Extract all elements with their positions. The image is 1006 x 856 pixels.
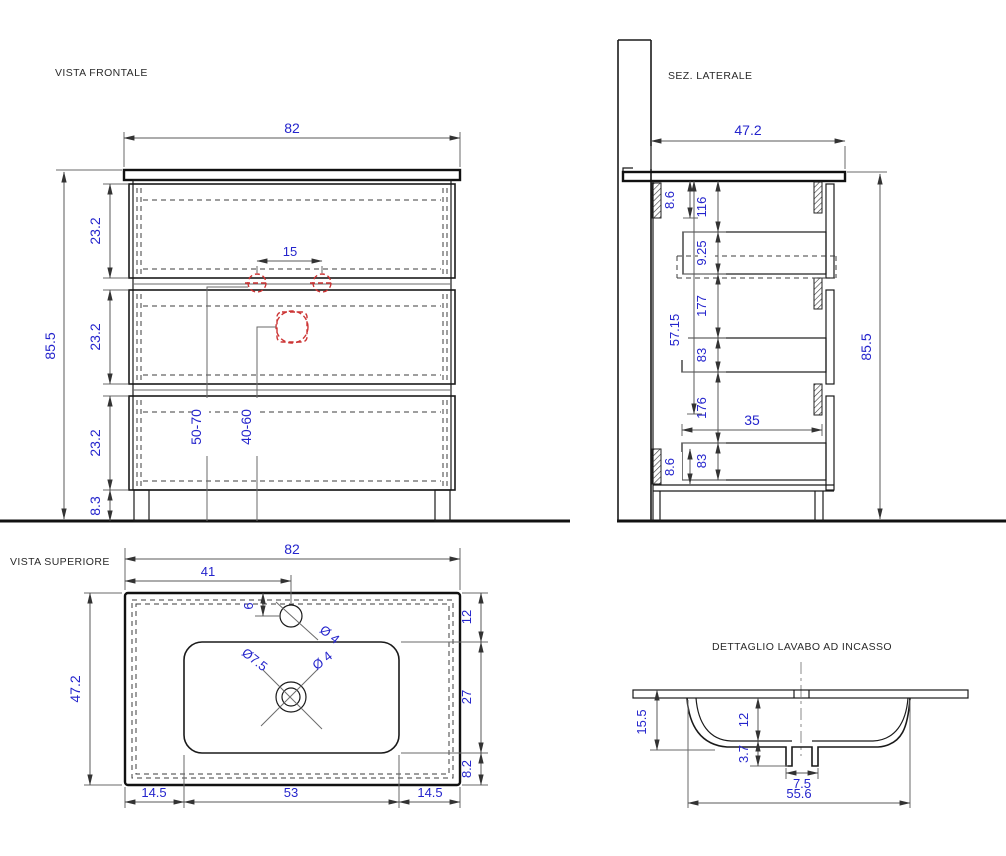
side-margin-left-label: 14.5 <box>141 785 166 800</box>
plinth-height-label: 8.3 <box>87 496 103 516</box>
basin-width-label: 53 <box>284 785 298 800</box>
tap-offset-y-label: 6 <box>241 602 256 609</box>
technical-drawing-canvas: VISTA FRONTALE <box>0 0 1006 856</box>
side-top-clearance-label: 116 <box>694 197 709 218</box>
detail-drain-drop-label: 3.7 <box>736 745 751 763</box>
top-depth-label: 47.2 <box>67 675 83 702</box>
front-total-height-label: 85.5 <box>42 332 58 359</box>
detail-total-depth-label: 15.5 <box>634 709 649 734</box>
tap-spacing-label: 15 <box>283 244 297 259</box>
side-drawer-depth-label: 35 <box>744 412 760 428</box>
side-top-gap-label: 8.6 <box>662 191 677 209</box>
side-total-height-label: 85.5 <box>858 333 874 360</box>
supply-height-range-label: 50-70 <box>188 409 204 445</box>
side-spacing2-label: 176 <box>694 397 709 419</box>
side-inner-height-label: 57.15 <box>667 314 682 347</box>
front-view-title: VISTA FRONTALE <box>55 67 148 79</box>
side-view-title: SEZ. LATERALE <box>668 70 752 82</box>
detail-bowl-width-label: 55.6 <box>786 786 811 801</box>
side-box1-label: 9.25 <box>694 240 709 265</box>
side-spacing1-label: 177 <box>694 295 709 317</box>
side-depth-label: 47.2 <box>734 122 761 138</box>
side-bottom-gap-label: 8.6 <box>662 458 677 476</box>
drawer3-height-label: 23.2 <box>87 429 103 456</box>
basin-depth-label: 27 <box>459 690 474 704</box>
back-margin-label: 12 <box>459 610 474 624</box>
detail-bowl-depth-label: 12 <box>736 713 751 727</box>
top-width-label: 82 <box>284 541 300 557</box>
side-box2-label: 83 <box>694 348 709 362</box>
top-view-title: VISTA SUPERIORE <box>10 556 110 568</box>
front-margin-label: 8.2 <box>459 760 474 778</box>
side-box3-label: 83 <box>694 454 709 468</box>
vanity-drawing: VISTA FRONTALE <box>0 0 1006 856</box>
front-width-label: 82 <box>284 120 300 136</box>
detail-view-title: DETTAGLIO LAVABO AD INCASSO <box>712 641 892 653</box>
drawer1-height-label: 23.2 <box>87 217 103 244</box>
background <box>0 0 1006 856</box>
drawer2-height-label: 23.2 <box>87 323 103 350</box>
drain-height-range-label: 40-60 <box>238 409 254 445</box>
tap-offset-x-label: 41 <box>201 564 215 579</box>
side-margin-right-label: 14.5 <box>417 785 442 800</box>
